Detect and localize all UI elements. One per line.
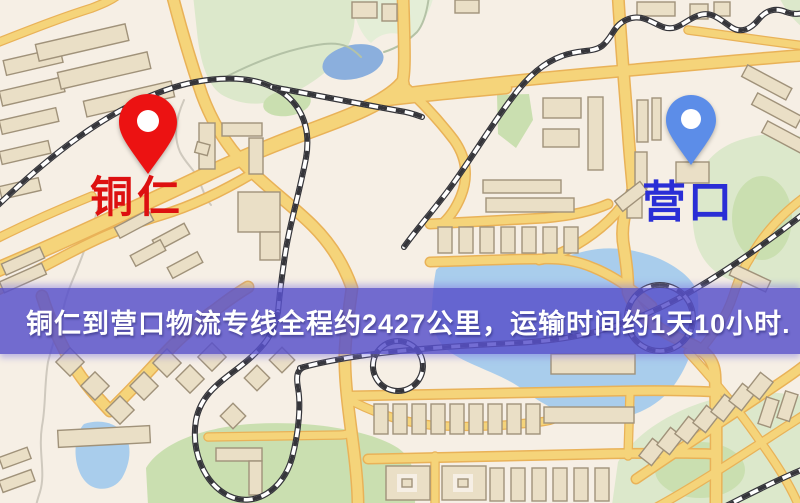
route-info-text: 铜仁到营口物流专线全程约2427公里，运输时间约1天10小时. — [0, 302, 791, 341]
map-canvas[interactable] — [0, 0, 800, 503]
destination-label: 营口 — [642, 181, 734, 225]
origin-pin-icon[interactable] — [117, 93, 179, 175]
origin-label: 铜仁 — [90, 177, 184, 220]
route-info-banner: 铜仁到营口物流专线全程约2427公里，运输时间约1天10小时. — [0, 288, 800, 354]
map-screenshot: 铜仁到营口物流专线全程约2427公里，运输时间约1天10小时. 铜仁 营口 — [0, 0, 800, 503]
destination-pin-icon[interactable] — [664, 94, 718, 166]
